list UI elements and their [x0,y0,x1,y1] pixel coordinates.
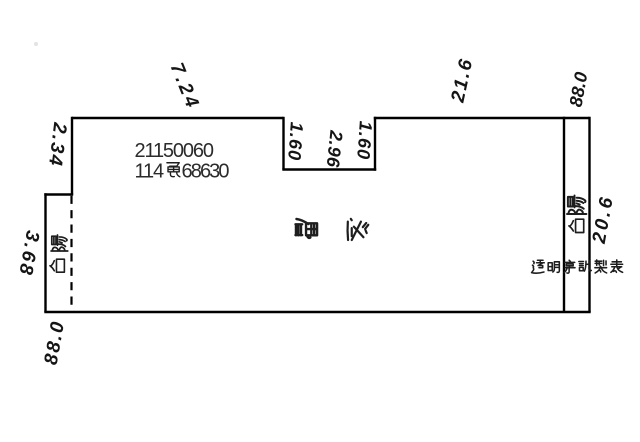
svg-text:68630: 68630 [182,161,230,183]
svg-text:88.0: 88.0 [566,71,592,109]
svg-text:1.60: 1.60 [353,120,376,160]
svg-text:20.6: 20.6 [589,193,618,246]
svg-text:114: 114 [135,161,164,183]
svg-text:21150060: 21150060 [135,140,214,162]
svg-text:2.96: 2.96 [323,129,347,169]
svg-text:3.68: 3.68 [14,229,43,279]
svg-text:1.60: 1.60 [284,121,307,161]
svg-text:2.34: 2.34 [44,120,70,168]
svg-text:21.6: 21.6 [447,56,477,105]
svg-text:7.24: 7.24 [166,60,204,113]
svg-text:88.0: 88.0 [41,319,69,367]
